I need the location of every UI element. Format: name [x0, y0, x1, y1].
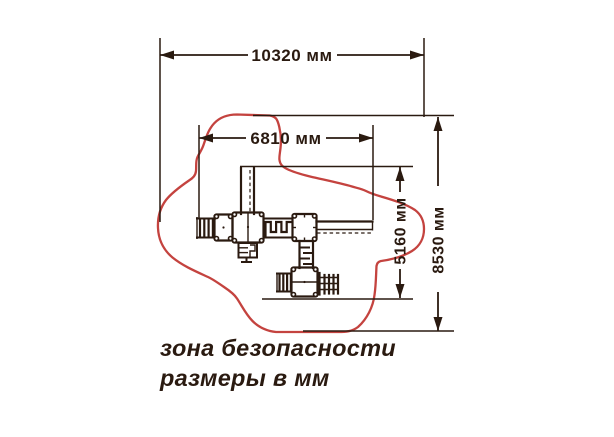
caption-units: размеры в мм: [159, 365, 330, 391]
arrowhead-right: [410, 51, 424, 60]
arrowhead-left: [160, 51, 174, 60]
drawing-page: { "colors": { "ink": "#2a1a10", "red": "…: [0, 0, 614, 437]
mast: [241, 168, 254, 214]
stairs-south: [239, 243, 258, 262]
dimension-equipment-width: 6810 мм: [199, 125, 373, 220]
dimension-label-total-width: 10320 мм: [251, 46, 332, 65]
ladder-west: [197, 217, 215, 239]
platform-b: [233, 213, 264, 243]
dimension-label-total-depth: 8530 мм: [431, 206, 448, 273]
safety-zone-plan: 10320 мм 6810 мм 5160 мм 8530 мм зона бе…: [0, 0, 614, 437]
arrowhead-down: [396, 284, 405, 298]
slide-east: [317, 221, 373, 234]
arrowhead-up: [434, 117, 443, 131]
platform-a: [215, 215, 233, 241]
dimension-label-equipment-depth: 5160 мм: [393, 197, 410, 264]
net-east: [320, 273, 339, 295]
arrowhead-down: [434, 317, 443, 331]
arrowhead-right: [359, 134, 373, 143]
caption: зона безопасности размеры в мм: [159, 335, 396, 391]
caption-zone: зона безопасности: [160, 335, 396, 361]
platform-d: [292, 268, 318, 297]
platform-c: [293, 214, 317, 241]
bridge: [264, 219, 293, 238]
equipment-plan: [197, 168, 373, 297]
arrowhead-up: [396, 167, 405, 181]
ladder-southwest: [277, 273, 292, 293]
dimension-label-equipment-width: 6810 мм: [250, 129, 321, 148]
climber-south: [300, 241, 314, 268]
